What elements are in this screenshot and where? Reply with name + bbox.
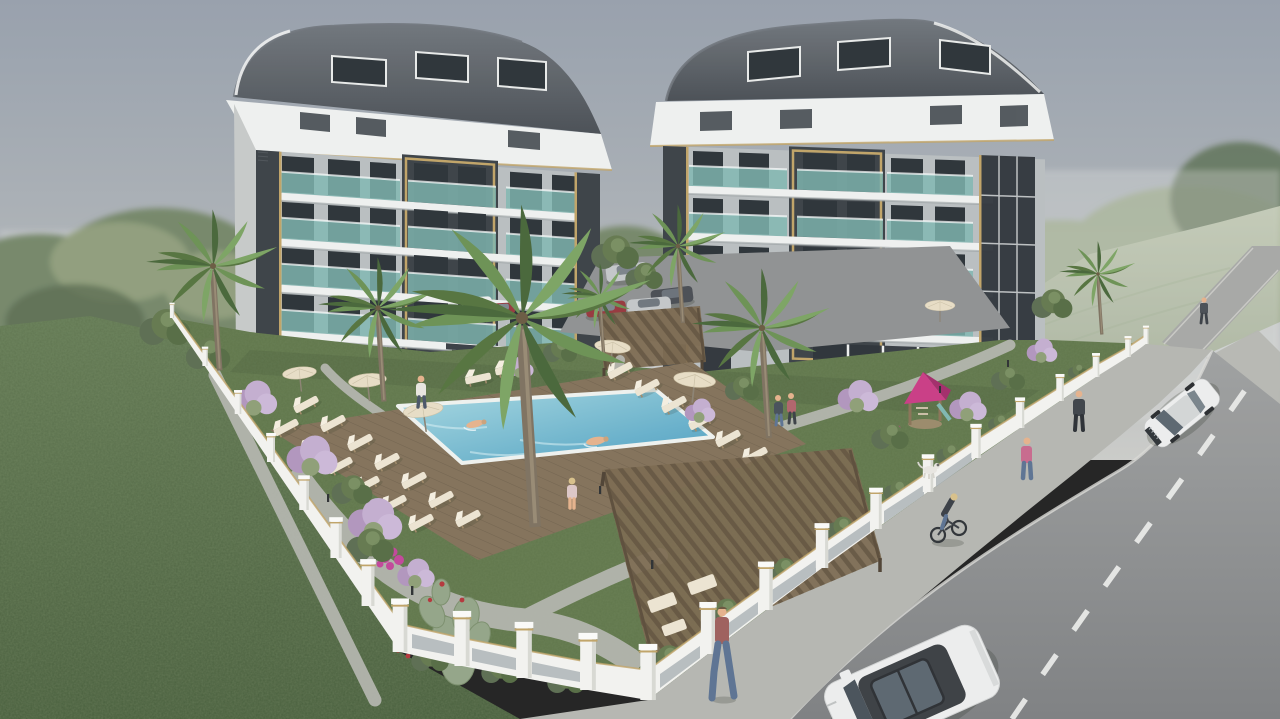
atmosphere-overlay	[0, 0, 1280, 719]
render-image	[0, 0, 1280, 719]
